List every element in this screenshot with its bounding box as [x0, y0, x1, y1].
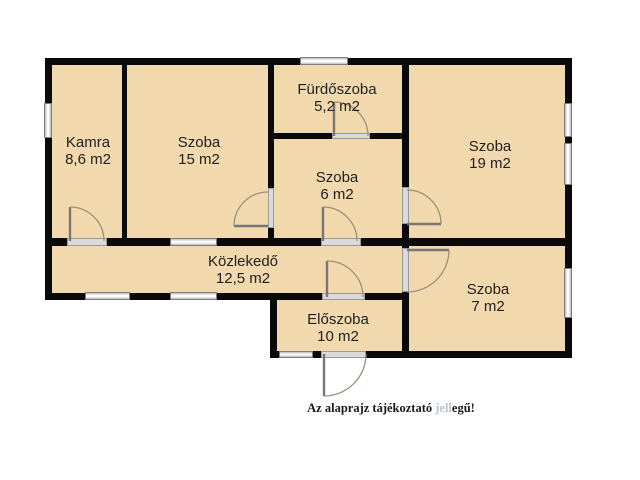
room-area: 6 m2 [316, 186, 359, 203]
disclaimer-part2-faded: jell [435, 401, 452, 415]
room-name: Szoba [316, 169, 359, 186]
room-label-furdoszoba: Fürdőszoba 5,2 m2 [297, 81, 376, 115]
disclaimer-part1: Az alaprajz tájékoztató [307, 401, 435, 415]
door-arc-szoba15 [234, 192, 268, 226]
room-area: 7 m2 [467, 298, 510, 315]
room-label-kamra: Kamra 8,6 m2 [65, 134, 111, 168]
door-arc-szoba6 [323, 207, 357, 241]
disclaimer-note: Az alaprajz tájékoztató jellegű! [307, 401, 475, 416]
door-arc-entry [324, 354, 366, 396]
room-label-szoba15: Szoba 15 m2 [178, 134, 221, 168]
room-name: Szoba [467, 281, 510, 298]
room-name: Közlekedő [208, 253, 278, 270]
room-name: Előszoba [307, 311, 369, 328]
floor-plan: Kamra 8,6 m2 Szoba 15 m2 Fürdőszoba 5,2 … [0, 0, 640, 480]
door-arc-szoba7 [407, 250, 449, 292]
room-name: Szoba [178, 134, 221, 151]
door-arc-eloszoba [327, 261, 363, 297]
room-name: Fürdőszoba [297, 81, 376, 98]
room-label-szoba19: Szoba 19 m2 [469, 138, 512, 172]
room-name: Kamra [65, 134, 111, 151]
room-label-szoba7: Szoba 7 m2 [467, 281, 510, 315]
door-arc-kamra [70, 207, 104, 241]
room-label-szoba6: Szoba 6 m2 [316, 169, 359, 203]
room-area: 15 m2 [178, 151, 221, 168]
room-name: Szoba [469, 138, 512, 155]
room-area: 12,5 m2 [208, 270, 278, 287]
room-area: 8,6 m2 [65, 151, 111, 168]
disclaimer-part3: egű! [452, 401, 475, 415]
room-area: 5,2 m2 [297, 98, 376, 115]
room-area: 10 m2 [307, 328, 369, 345]
room-area: 19 m2 [469, 155, 512, 172]
door-arc-szoba19 [407, 190, 441, 224]
room-label-kozlekedo: Közlekedő 12,5 m2 [208, 253, 278, 287]
room-label-eloszoba: Előszoba 10 m2 [307, 311, 369, 345]
